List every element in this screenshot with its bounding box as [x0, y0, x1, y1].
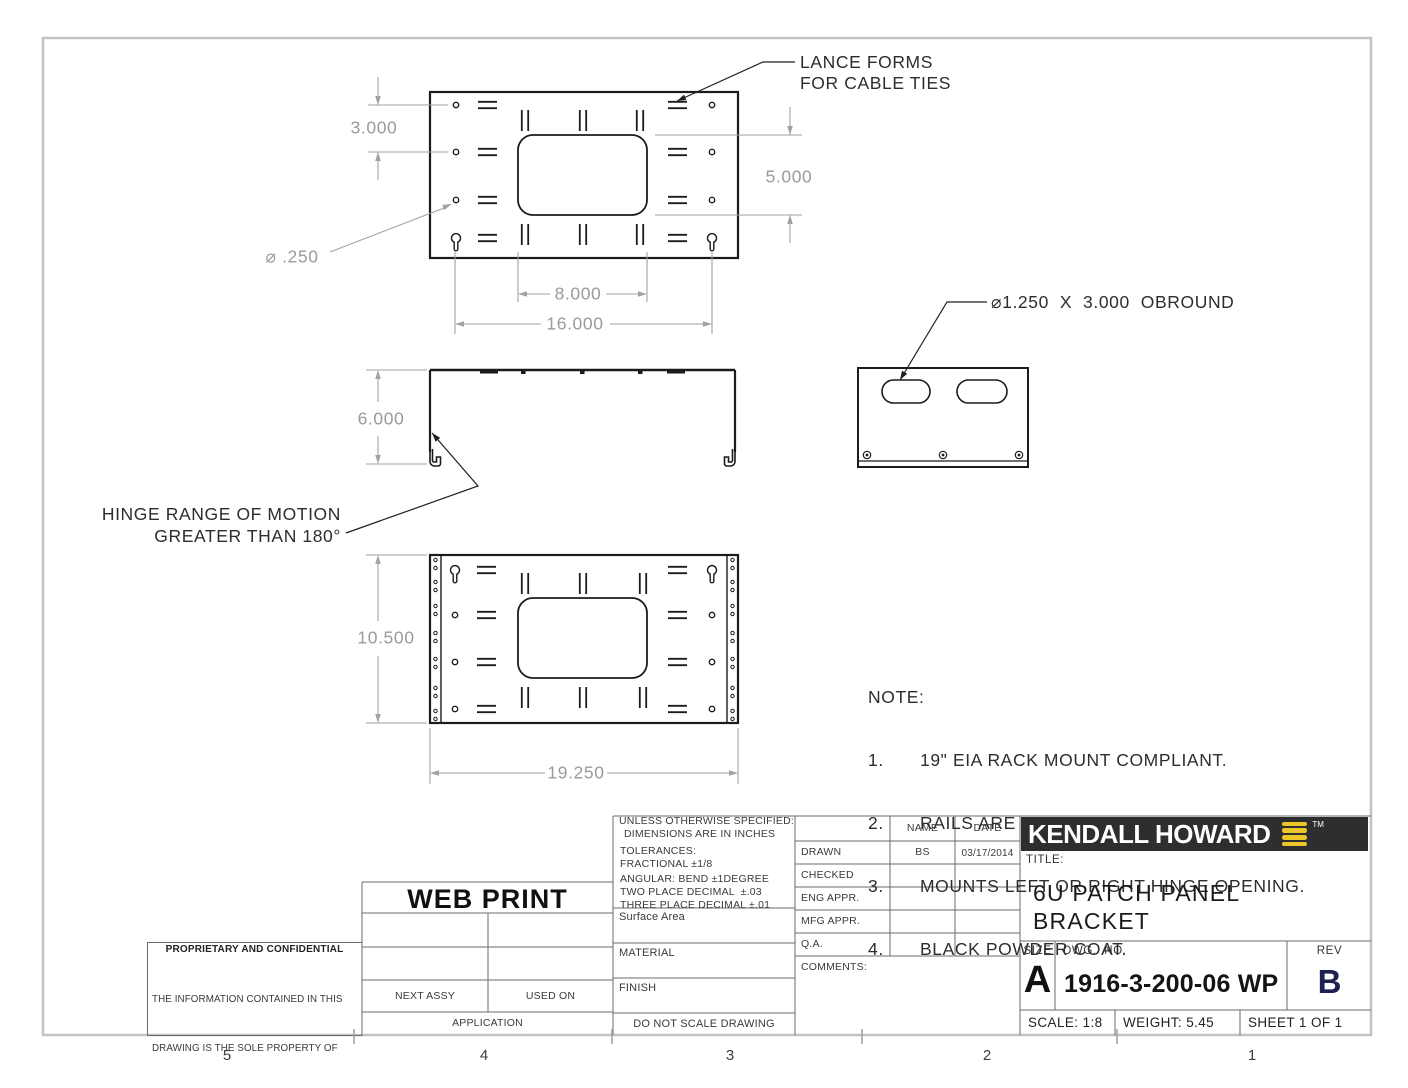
hinge-hook-left [430, 449, 441, 466]
side-view [430, 369, 735, 466]
rev-value: B [1287, 963, 1372, 1001]
drawing-sheet: LANCE FORMS FOR CABLE TIES 3.000 5.000 ⌀… [0, 0, 1408, 1088]
dwg-no-label: DWG. NO. [1063, 945, 1127, 957]
rev-label: REV [1287, 945, 1372, 957]
drawing-title-line2: BRACKET [1033, 907, 1150, 935]
kendall-howard-logo: KENDALL HOWARD TM [1021, 817, 1368, 851]
date-header: DATE [955, 822, 1020, 835]
proprietary-heading: PROPRIETARY AND CONFIDENTIAL [147, 944, 362, 955]
note-item: 1.19" EIA RACK MOUNT COMPLIANT. [868, 750, 1305, 771]
next-assy-label: NEXT ASSY [362, 990, 488, 1003]
hinge-hook-right [725, 449, 736, 466]
approval-row-label: ENG APPR. [801, 892, 859, 905]
specs-line-2: DIMENSIONS ARE IN INCHES [624, 828, 775, 841]
kendall-howard-logo-bars-icon [1282, 820, 1307, 847]
dim-3000: 3.000 [351, 118, 398, 139]
kendall-howard-logo-text: KENDALL HOWARD [1028, 819, 1270, 850]
proprietary-body: THE INFORMATION CONTAINED IN THIS DRAWIN… [152, 957, 372, 1088]
end-view [858, 368, 1028, 467]
dim-8000: 8.000 [555, 284, 602, 305]
dim-10500: 10.500 [357, 628, 414, 649]
material-label: MATERIAL [619, 947, 675, 960]
name-header: NAME [890, 822, 955, 835]
size-value: A [1020, 959, 1055, 1002]
zone-ticks [354, 1029, 1117, 1044]
comments-label: COMMENTS: [801, 961, 867, 974]
approval-row-label: DRAWN [801, 846, 841, 859]
hinge-callout-line1: HINGE RANGE OF MOTION [41, 504, 341, 525]
hinge-callout-line2: GREATER THAN 180° [41, 526, 341, 547]
front-view [430, 555, 738, 723]
dim-19250: 19.250 [547, 763, 604, 784]
specs-line-6: TWO PLACE DECIMAL ±.03 [620, 886, 762, 899]
zone-number: 4 [480, 1047, 488, 1064]
scale-value: SCALE: 1:8 [1028, 1015, 1103, 1030]
weight-value: WEIGHT: 5.45 [1123, 1015, 1214, 1030]
dim-16000: 16.000 [546, 314, 603, 335]
dwg-no-value: 1916-3-200-06 WP [1064, 970, 1278, 999]
drawn-date: 03/17/2014 [955, 847, 1020, 860]
trademark-symbol: TM [1312, 820, 1324, 829]
approval-row-label: MFG APPR. [801, 915, 860, 928]
hole-diameter-callout: ⌀ .250 [265, 247, 318, 268]
size-label: SIZE [1020, 945, 1055, 957]
title-label: TITLE: [1026, 854, 1064, 866]
zone-number: 2 [983, 1047, 991, 1064]
specs-line-1: UNLESS OTHERWISE SPECIFIED: [619, 815, 794, 828]
sheet-value: SHEET 1 OF 1 [1248, 1015, 1343, 1030]
dim-6000: 6.000 [358, 409, 405, 430]
drawn-name: BS [890, 846, 955, 859]
lance-forms-callout-line1: LANCE FORMS [800, 52, 933, 73]
lance-forms-callout-line2: FOR CABLE TIES [800, 73, 951, 94]
notes-heading: NOTE: [868, 687, 1305, 708]
do-not-scale-label: DO NOT SCALE DRAWING [613, 1018, 795, 1031]
obround-callout: ⌀1.250 X 3.000 OBROUND [991, 292, 1234, 313]
dim-5000: 5.000 [766, 167, 813, 188]
finish-label: FINISH [619, 982, 656, 995]
specs-line-4: FRACTIONAL ±1/8 [620, 858, 712, 871]
zone-number: 1 [1248, 1047, 1256, 1064]
specs-line-5: ANGULAR: BEND ±1DEGREE [620, 873, 769, 886]
application-label: APPLICATION [362, 1017, 613, 1030]
zone-number: 3 [726, 1047, 734, 1064]
approval-row-label: Q.A. [801, 938, 823, 951]
specs-line-3: TOLERANCES: [620, 845, 696, 858]
web-print-stamp: WEB PRINT [362, 884, 613, 915]
zone-number: 5 [223, 1047, 231, 1064]
used-on-label: USED ON [488, 990, 613, 1003]
approval-row-label: CHECKED [801, 869, 854, 882]
top-view [430, 92, 738, 258]
surface-area-label: Surface Area [619, 911, 685, 924]
drawing-title-line1: 6U PATCH PANEL [1033, 879, 1240, 907]
